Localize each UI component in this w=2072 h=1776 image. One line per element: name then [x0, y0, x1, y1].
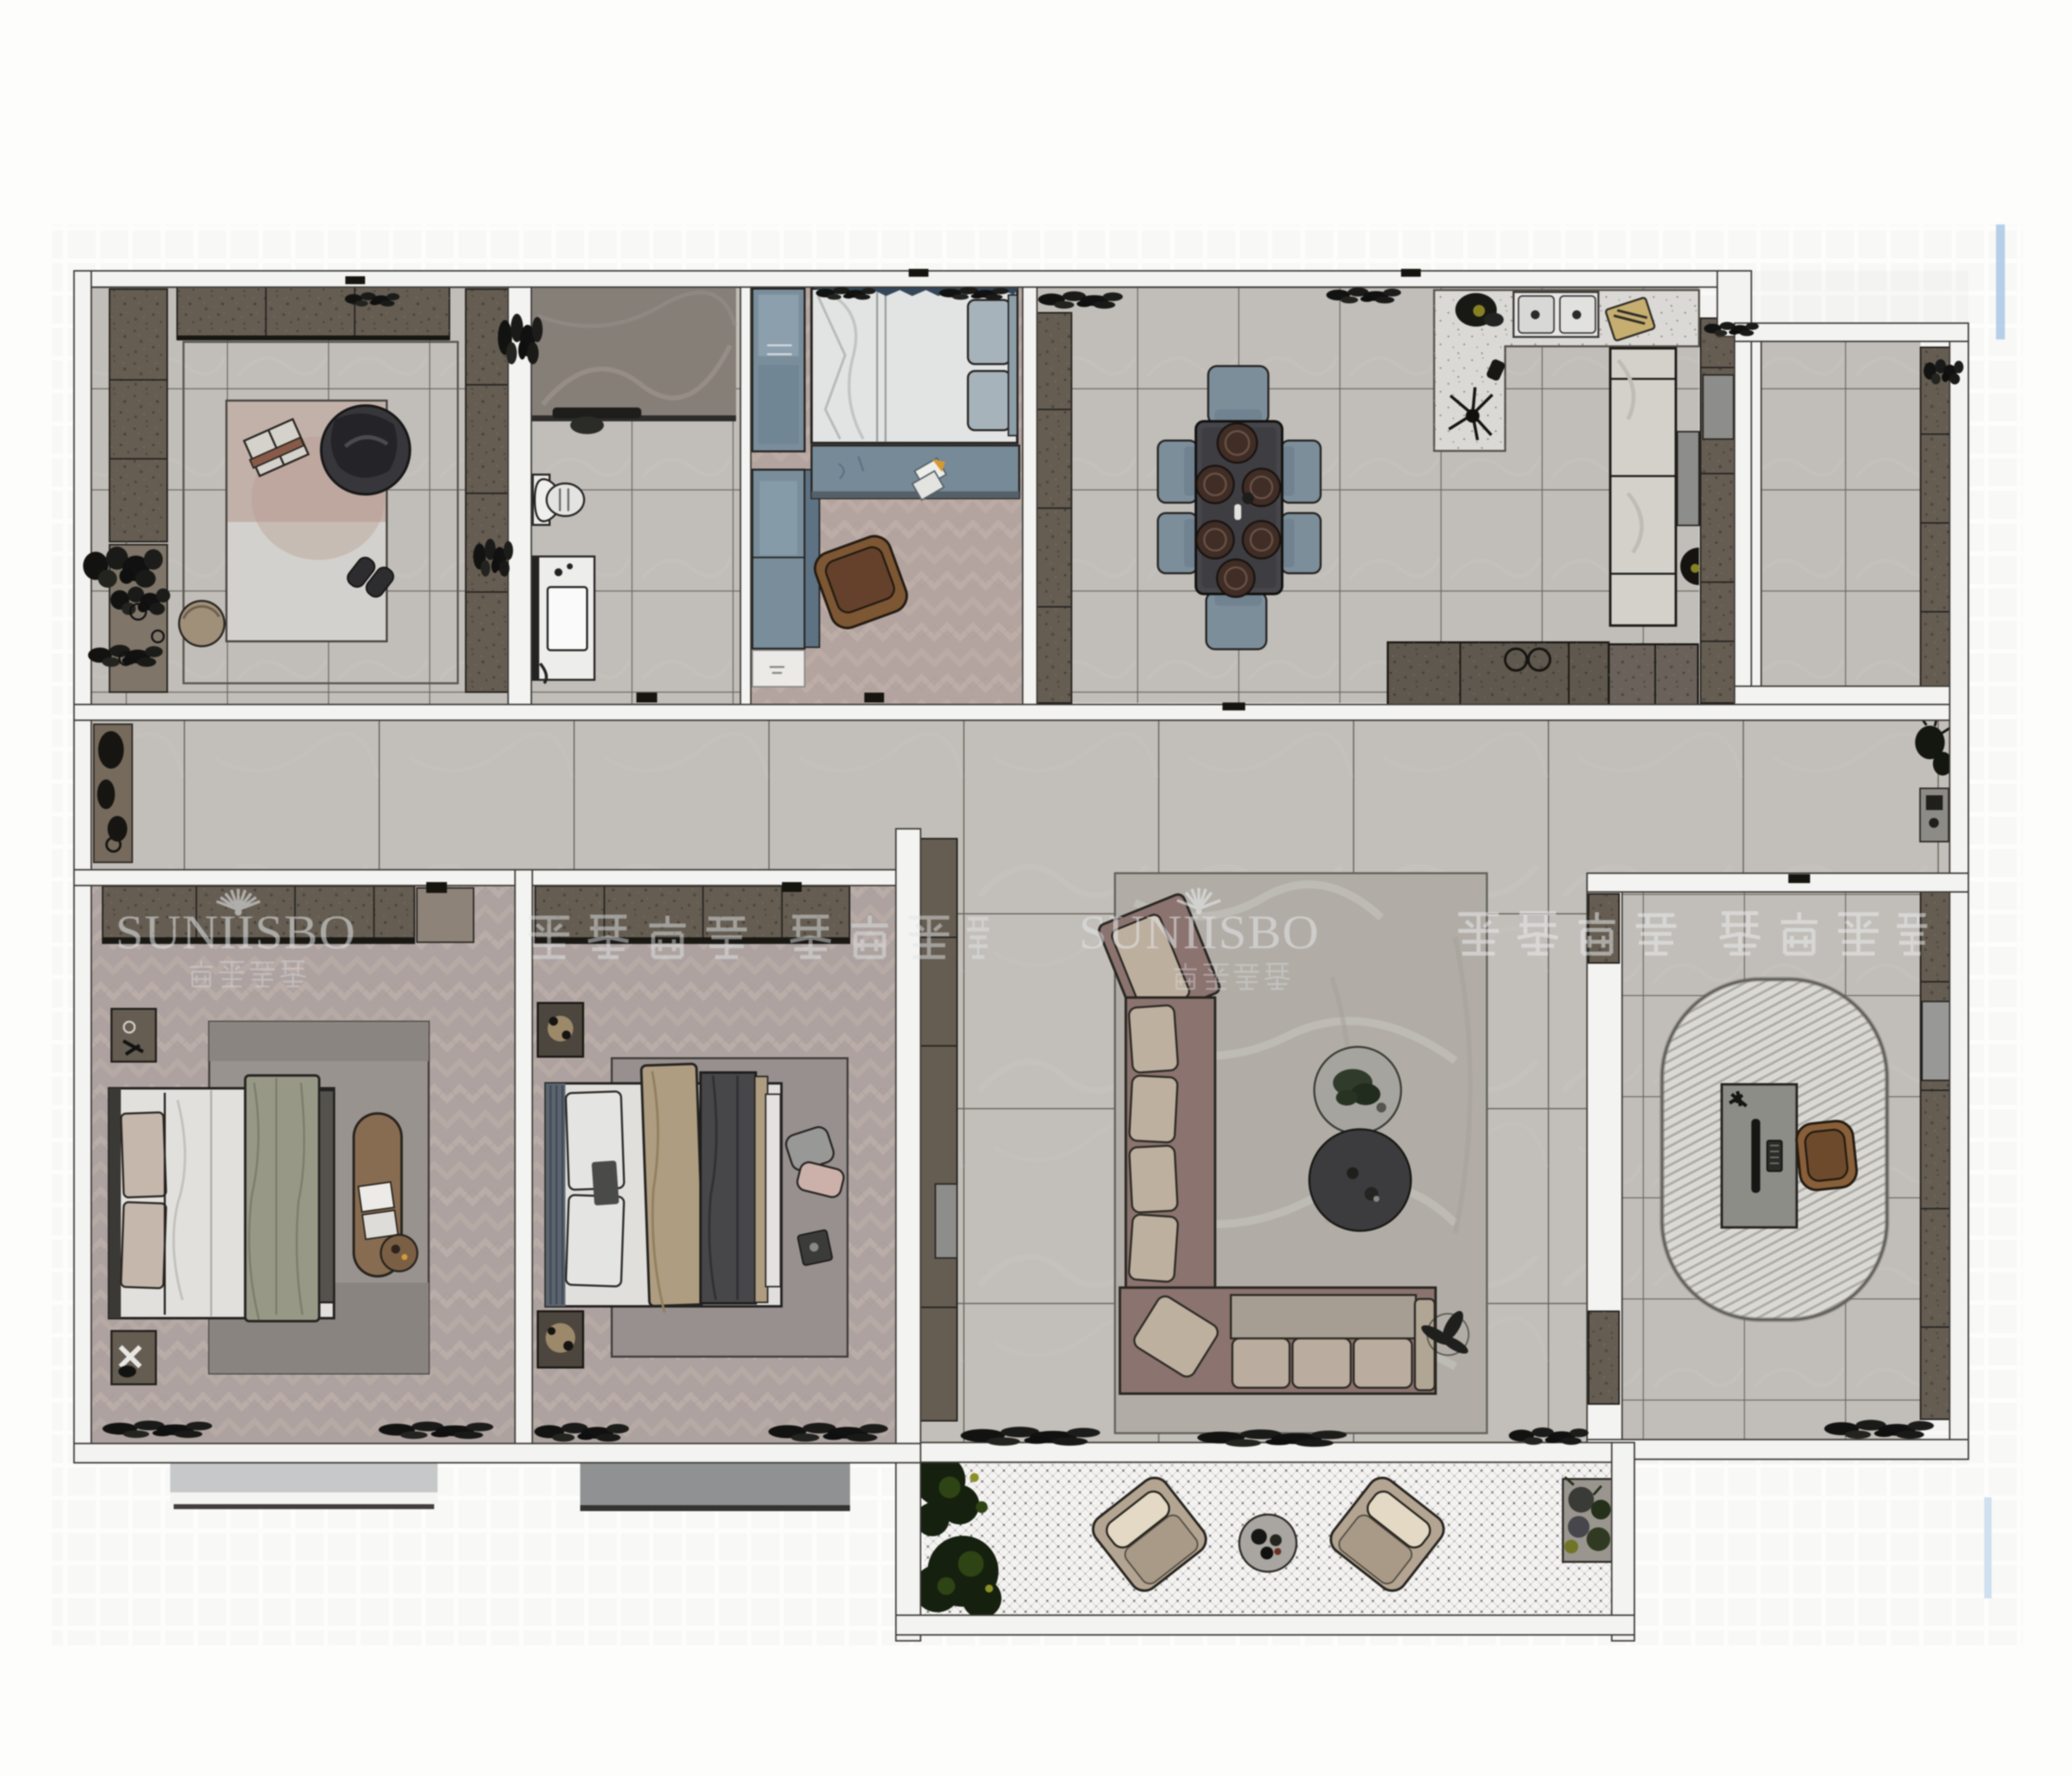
svg-text:SUNIISBO: SUNIISBO: [1079, 906, 1320, 959]
svg-text:SUNIISBO: SUNIISBO: [115, 906, 356, 959]
